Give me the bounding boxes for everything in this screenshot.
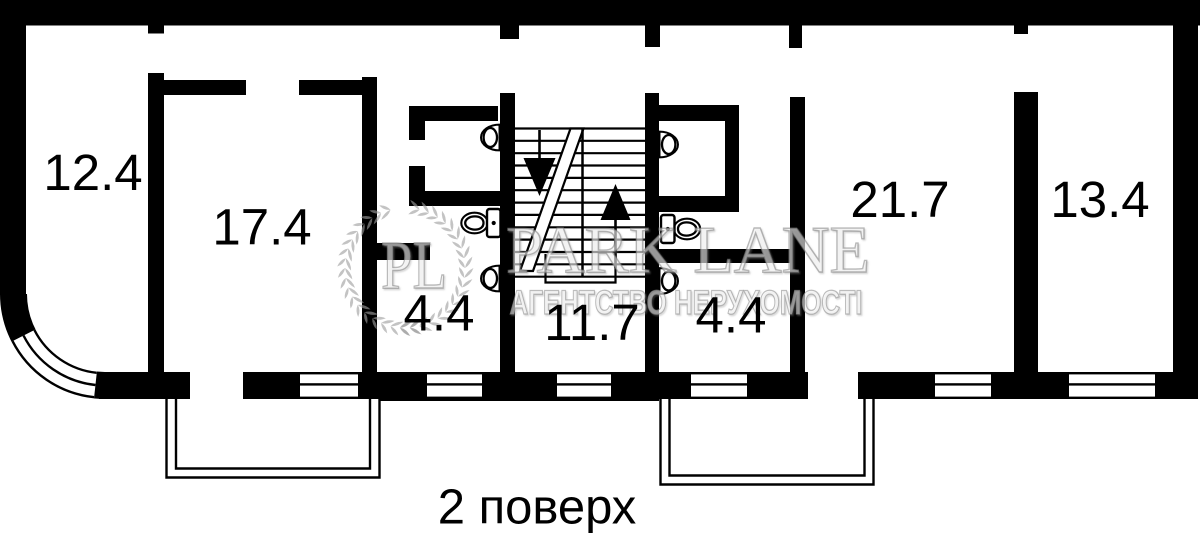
svg-text:11.7: 11.7 [544,294,639,351]
svg-text:17.4: 17.4 [212,199,311,256]
svg-text:13.4: 13.4 [1050,171,1149,228]
svg-text:12.4: 12.4 [43,144,142,201]
svg-text:4.4: 4.4 [696,287,767,344]
svg-text:2 поверх: 2 поверх [438,481,637,534]
svg-text:21.7: 21.7 [850,171,949,228]
svg-text:PARK LANE: PARK LANE [506,213,870,287]
svg-text:4.4: 4.4 [404,285,475,342]
